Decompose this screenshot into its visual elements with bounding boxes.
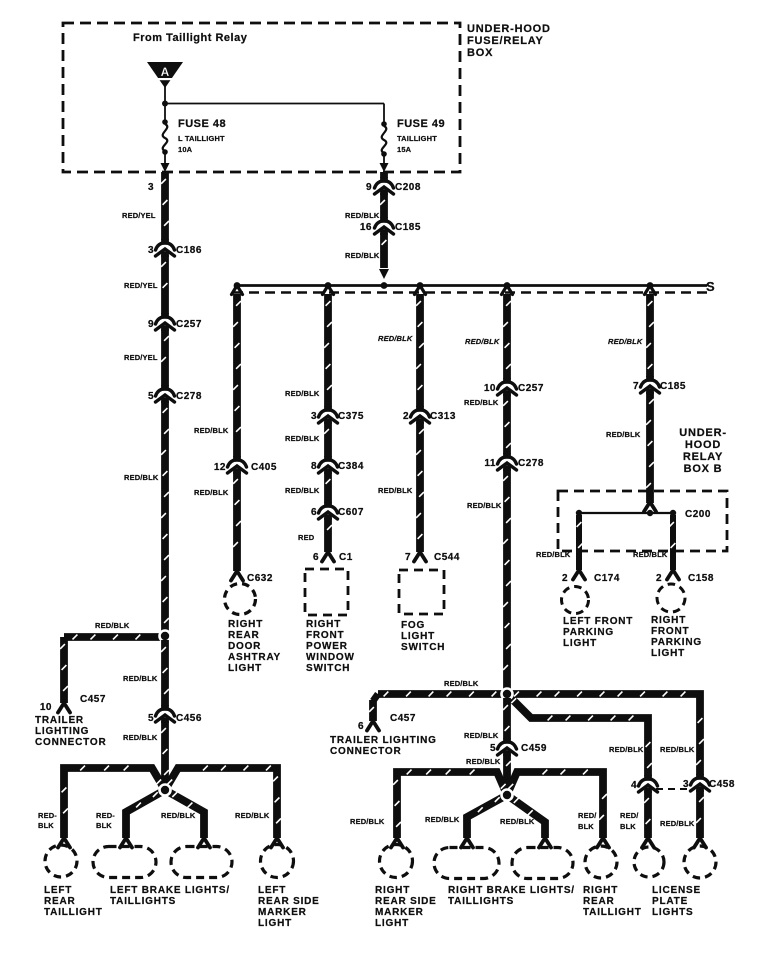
svg-text:10: 10 xyxy=(40,702,52,713)
svg-text:6: 6 xyxy=(358,721,364,732)
svg-text:DOOR: DOOR xyxy=(228,641,261,652)
svg-text:A: A xyxy=(161,65,170,79)
svg-text:15A: 15A xyxy=(397,145,412,154)
svg-text:C458: C458 xyxy=(709,779,735,790)
svg-text:3: 3 xyxy=(311,411,317,422)
svg-text:FOG: FOG xyxy=(401,620,425,631)
svg-text:FRONT: FRONT xyxy=(651,626,689,637)
svg-text:C200: C200 xyxy=(685,509,711,520)
svg-text:C1: C1 xyxy=(339,552,353,563)
svg-text:FUSE 49: FUSE 49 xyxy=(397,118,445,130)
svg-text:6: 6 xyxy=(313,552,319,563)
svg-text:C174: C174 xyxy=(594,573,620,584)
svg-text:UNDER-: UNDER- xyxy=(679,427,727,439)
svg-text:RED/BLK: RED/BLK xyxy=(123,674,158,683)
svg-text:LIGHT: LIGHT xyxy=(228,663,262,674)
svg-text:RED/BLK: RED/BLK xyxy=(161,811,196,820)
svg-text:SWITCH: SWITCH xyxy=(401,642,445,653)
svg-text:RED/BLK: RED/BLK xyxy=(350,817,385,826)
svg-text:LIGHT: LIGHT xyxy=(375,918,409,929)
svg-text:BOX B: BOX B xyxy=(684,463,723,475)
svg-text:3: 3 xyxy=(148,182,154,193)
svg-text:REAR SIDE: REAR SIDE xyxy=(375,896,437,907)
svg-text:MARKER: MARKER xyxy=(375,907,424,918)
svg-text:C456: C456 xyxy=(176,713,202,724)
svg-text:RED: RED xyxy=(298,533,315,542)
svg-text:BLK: BLK xyxy=(620,822,636,831)
svg-text:RIGHT BRAKE LIGHTS/: RIGHT BRAKE LIGHTS/ xyxy=(448,885,575,896)
svg-text:RED/BLK: RED/BLK xyxy=(608,337,643,346)
svg-text:RED/BLK: RED/BLK xyxy=(285,434,320,443)
svg-text:9: 9 xyxy=(366,182,372,193)
svg-text:RED/BLK: RED/BLK xyxy=(194,488,229,497)
svg-text:C384: C384 xyxy=(338,461,364,472)
svg-text:RIGHT: RIGHT xyxy=(651,615,686,626)
svg-text:RED/BLK: RED/BLK xyxy=(444,679,479,688)
svg-text:5: 5 xyxy=(490,743,496,754)
svg-text:C632: C632 xyxy=(247,573,273,584)
svg-text:RED/BLK: RED/BLK xyxy=(464,398,499,407)
svg-text:RED/BLK: RED/BLK xyxy=(235,811,270,820)
svg-text:FRONT: FRONT xyxy=(306,630,344,641)
svg-text:REAR: REAR xyxy=(44,896,76,907)
svg-text:C375: C375 xyxy=(338,411,364,422)
svg-text:RED-: RED- xyxy=(96,811,115,820)
svg-text:TAILLIGHTS: TAILLIGHTS xyxy=(448,896,514,907)
svg-text:C405: C405 xyxy=(251,462,277,473)
svg-text:TAILLIGHT: TAILLIGHT xyxy=(583,907,642,918)
svg-text:LIGHT: LIGHT xyxy=(563,638,597,649)
svg-text:5: 5 xyxy=(148,713,154,724)
svg-text:C186: C186 xyxy=(176,245,202,256)
svg-text:C457: C457 xyxy=(390,713,416,724)
svg-text:TRAILER LIGHTING: TRAILER LIGHTING xyxy=(330,735,437,746)
svg-text:RED/: RED/ xyxy=(620,811,639,820)
svg-text:RED/BLK: RED/BLK xyxy=(285,486,320,495)
svg-text:LIGHTING: LIGHTING xyxy=(35,726,89,737)
svg-text:PLATE: PLATE xyxy=(652,896,688,907)
svg-text:C544: C544 xyxy=(434,552,460,563)
svg-text:5: 5 xyxy=(148,391,154,402)
svg-text:C158: C158 xyxy=(688,573,714,584)
svg-text:RED/BLK: RED/BLK xyxy=(609,745,644,754)
svg-text:CONNECTOR: CONNECTOR xyxy=(330,746,401,757)
svg-text:C257: C257 xyxy=(176,319,202,330)
svg-text:BLK: BLK xyxy=(578,822,594,831)
svg-text:WINDOW: WINDOW xyxy=(306,652,355,663)
svg-text:RED/: RED/ xyxy=(578,811,597,820)
svg-text:MARKER: MARKER xyxy=(258,907,307,918)
svg-text:RED/YEL: RED/YEL xyxy=(124,281,158,290)
svg-text:C185: C185 xyxy=(395,222,421,233)
svg-text:SWITCH: SWITCH xyxy=(306,663,350,674)
svg-text:RED/BLK: RED/BLK xyxy=(500,817,535,826)
svg-text:RED/BLK: RED/BLK xyxy=(345,251,380,260)
svg-text:TAILLIGHT: TAILLIGHT xyxy=(44,907,103,918)
svg-text:3: 3 xyxy=(148,245,154,256)
svg-text:C607: C607 xyxy=(338,507,364,518)
svg-text:12: 12 xyxy=(214,462,226,473)
svg-text:7: 7 xyxy=(633,381,639,392)
svg-text:2: 2 xyxy=(656,573,662,584)
svg-text:LIGHTS: LIGHTS xyxy=(652,907,693,918)
svg-text:C278: C278 xyxy=(176,391,202,402)
svg-text:TAILLIGHTS: TAILLIGHTS xyxy=(110,896,176,907)
svg-text:RED/BLK: RED/BLK xyxy=(536,550,571,559)
svg-text:RED/BLK: RED/BLK xyxy=(378,486,413,495)
svg-text:S: S xyxy=(706,279,715,294)
svg-text:6: 6 xyxy=(311,507,317,518)
svg-text:ASHTRAY: ASHTRAY xyxy=(228,652,281,663)
svg-text:LIGHT: LIGHT xyxy=(258,918,292,929)
svg-text:TAILLIGHT: TAILLIGHT xyxy=(397,134,437,143)
svg-text:7: 7 xyxy=(405,552,411,563)
svg-text:9: 9 xyxy=(148,319,154,330)
svg-text:BLK: BLK xyxy=(96,821,112,830)
svg-text:C278: C278 xyxy=(518,458,544,469)
svg-text:RED/BLK: RED/BLK xyxy=(466,757,501,766)
svg-text:RED/BLK: RED/BLK xyxy=(465,337,500,346)
svg-text:RIGHT: RIGHT xyxy=(583,885,618,896)
svg-text:LICENSE: LICENSE xyxy=(652,885,701,896)
svg-text:BLK: BLK xyxy=(38,821,54,830)
svg-text:LEFT: LEFT xyxy=(44,885,72,896)
svg-text:RED/BLK: RED/BLK xyxy=(194,426,229,435)
svg-text:POWER: POWER xyxy=(306,641,348,652)
svg-text:PARKING: PARKING xyxy=(651,637,702,648)
svg-text:RED/BLK: RED/BLK xyxy=(123,733,158,742)
svg-text:C208: C208 xyxy=(395,182,421,193)
svg-text:LIGHT: LIGHT xyxy=(651,648,685,659)
svg-text:C185: C185 xyxy=(660,381,686,392)
svg-text:FUSE 48: FUSE 48 xyxy=(178,118,226,130)
svg-text:RED/BLK: RED/BLK xyxy=(124,473,159,482)
svg-text:RELAY: RELAY xyxy=(683,451,723,463)
svg-text:10A: 10A xyxy=(178,145,193,154)
svg-text:RIGHT: RIGHT xyxy=(306,619,341,630)
svg-text:RED-: RED- xyxy=(38,811,57,820)
svg-text:C457: C457 xyxy=(80,694,106,705)
svg-text:HOOD: HOOD xyxy=(685,439,721,451)
svg-text:RED/BLK: RED/BLK xyxy=(378,334,413,343)
svg-text:RED/YEL: RED/YEL xyxy=(124,353,158,362)
svg-text:RED/BLK: RED/BLK xyxy=(285,389,320,398)
svg-text:C313: C313 xyxy=(430,411,456,422)
svg-text:RED/YEL: RED/YEL xyxy=(122,211,156,220)
svg-text:LEFT BRAKE LIGHTS/: LEFT BRAKE LIGHTS/ xyxy=(110,885,230,896)
svg-text:PARKING: PARKING xyxy=(563,627,614,638)
svg-text:RED/BLK: RED/BLK xyxy=(633,550,668,559)
svg-text:LIGHT: LIGHT xyxy=(401,631,435,642)
svg-text:BOX: BOX xyxy=(467,47,493,59)
svg-text:2: 2 xyxy=(403,411,409,422)
svg-text:FUSE/RELAY: FUSE/RELAY xyxy=(467,35,544,47)
svg-text:REAR: REAR xyxy=(583,896,615,907)
svg-text:CONNECTOR: CONNECTOR xyxy=(35,737,106,748)
svg-text:2: 2 xyxy=(562,573,568,584)
svg-text:LEFT FRONT: LEFT FRONT xyxy=(563,616,633,627)
svg-text:C459: C459 xyxy=(521,743,547,754)
svg-text:RIGHT: RIGHT xyxy=(228,619,263,630)
svg-text:From Taillight Relay: From Taillight Relay xyxy=(133,32,248,44)
svg-text:RED/BLK: RED/BLK xyxy=(95,621,130,630)
svg-text:RED/BLK: RED/BLK xyxy=(464,731,499,740)
svg-text:UNDER-HOOD: UNDER-HOOD xyxy=(467,23,551,35)
svg-text:C257: C257 xyxy=(518,383,544,394)
svg-text:RED/BLK: RED/BLK xyxy=(660,745,695,754)
svg-text:11: 11 xyxy=(484,458,496,469)
svg-text:LEFT: LEFT xyxy=(258,885,286,896)
svg-text:4: 4 xyxy=(631,780,637,791)
svg-text:16: 16 xyxy=(360,222,372,233)
svg-text:RED/BLK: RED/BLK xyxy=(425,815,460,824)
svg-text:RIGHT: RIGHT xyxy=(375,885,410,896)
svg-text:10: 10 xyxy=(484,383,496,394)
svg-text:REAR SIDE: REAR SIDE xyxy=(258,896,320,907)
svg-text:RED/BLK: RED/BLK xyxy=(467,501,502,510)
svg-text:REAR: REAR xyxy=(228,630,260,641)
svg-text:RED/BLK: RED/BLK xyxy=(660,819,695,828)
svg-text:L TAILLIGHT: L TAILLIGHT xyxy=(178,134,225,143)
svg-text:RED/BLK: RED/BLK xyxy=(606,430,641,439)
svg-text:TRAILER: TRAILER xyxy=(35,715,84,726)
svg-text:8: 8 xyxy=(311,461,317,472)
